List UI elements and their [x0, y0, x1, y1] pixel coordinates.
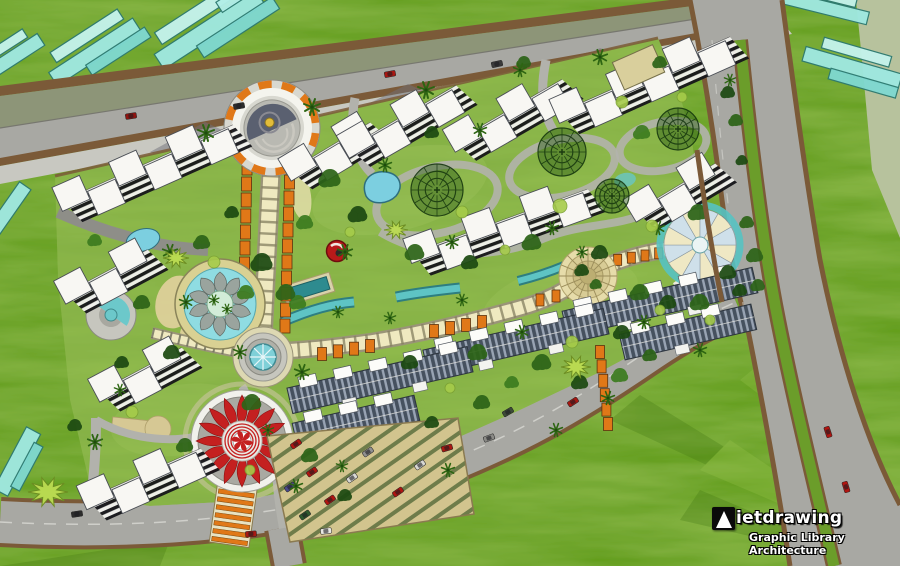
- watermark-subtitle: Graphic Library Architecture: [749, 531, 900, 557]
- site-plan-rendering: [0, 0, 900, 566]
- watermark: ietdrawing Graphic Library Architecture: [712, 507, 900, 557]
- watermark-brand: ietdrawing: [736, 508, 842, 528]
- vietdrawing-logo-icon: [712, 507, 735, 530]
- master-plan-screenshot: ietdrawing Graphic Library Architecture: [0, 0, 900, 566]
- radial-plaza: [559, 247, 617, 305]
- orange-ladder-walk: [209, 485, 257, 548]
